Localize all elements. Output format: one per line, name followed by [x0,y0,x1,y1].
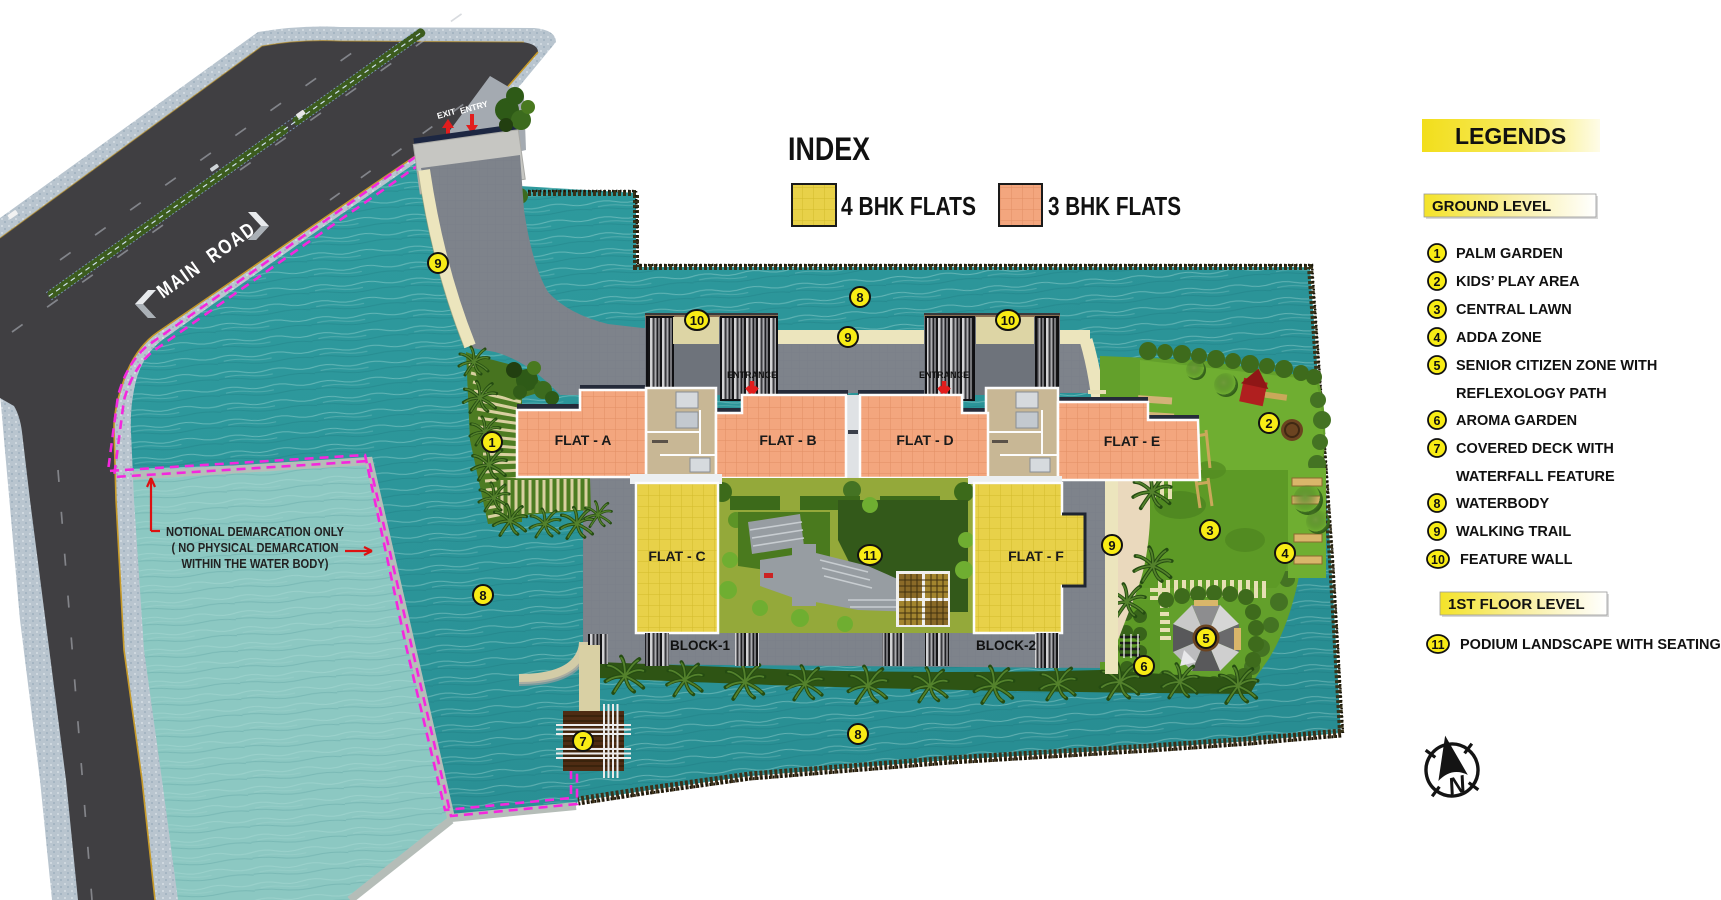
svg-text:REFLEXOLOGY PATH: REFLEXOLOGY PATH [1456,386,1607,402]
svg-text:10: 10 [1431,553,1445,567]
svg-text:8: 8 [856,290,863,305]
svg-text:11: 11 [863,548,877,563]
svg-text:BLOCK-2: BLOCK-2 [976,638,1036,653]
svg-text:FLAT - F: FLAT - F [1008,548,1064,564]
svg-text:GROUND LEVEL: GROUND LEVEL [1432,198,1551,215]
svg-text:9: 9 [1108,538,1115,553]
svg-text:NOTIONAL DEMARCATION ONLY: NOTIONAL DEMARCATION ONLY [166,524,344,539]
svg-text:COVERED DECK WITH: COVERED DECK WITH [1456,441,1614,457]
svg-text:3: 3 [1434,303,1441,317]
svg-text:4: 4 [1434,331,1441,345]
svg-text:FLAT - B: FLAT - B [759,432,816,448]
svg-text:ENTRANCE: ENTRANCE [919,370,969,380]
svg-text:9: 9 [1434,525,1441,539]
svg-text:5: 5 [1434,359,1441,373]
svg-text:WITHIN THE WATER BODY): WITHIN THE WATER BODY) [182,556,329,571]
svg-text:8: 8 [1434,497,1441,511]
svg-text:4: 4 [1281,546,1289,561]
svg-text:FEATURE WALL: FEATURE WALL [1460,552,1573,568]
svg-text:WATERFALL FEATURE: WATERFALL FEATURE [1456,469,1615,485]
svg-text:FLAT - E: FLAT - E [1104,433,1161,449]
svg-text:SENIOR CITIZEN ZONE WITH: SENIOR CITIZEN ZONE WITH [1456,358,1657,374]
svg-text:INDEX: INDEX [788,131,871,167]
svg-text:WALKING TRAIL: WALKING TRAIL [1456,524,1571,540]
svg-text:WATERBODY: WATERBODY [1456,496,1550,512]
svg-text:5: 5 [1202,631,1209,646]
svg-text:6: 6 [1434,414,1441,428]
svg-text:ADDA ZONE: ADDA ZONE [1456,330,1542,346]
svg-text:ENTRANCE: ENTRANCE [727,370,777,380]
svg-text:PODIUM LANDSCAPE WITH SEATING: PODIUM LANDSCAPE WITH SEATING [1460,637,1721,653]
svg-text:( NO PHYSICAL DEMARCATION: ( NO PHYSICAL DEMARCATION [172,540,339,555]
svg-text:10: 10 [1001,313,1015,328]
svg-text:BLOCK-1: BLOCK-1 [670,638,730,653]
svg-text:10: 10 [690,313,704,328]
svg-text:FLAT - C: FLAT - C [648,548,705,564]
svg-text:CENTRAL LAWN: CENTRAL LAWN [1456,302,1572,318]
svg-text:7: 7 [1434,442,1441,456]
svg-text:1: 1 [1434,247,1441,261]
svg-text:FLAT - D: FLAT - D [896,432,953,448]
svg-text:1: 1 [488,435,495,450]
svg-text:9: 9 [844,330,851,345]
svg-text:PALM GARDEN: PALM GARDEN [1456,246,1563,262]
svg-text:6: 6 [1140,659,1147,674]
svg-text:4 BHK FLATS: 4 BHK FLATS [841,191,976,221]
svg-text:8: 8 [479,588,486,603]
svg-text:KIDS’ PLAY AREA: KIDS’ PLAY AREA [1456,274,1580,290]
svg-text:8: 8 [854,727,861,742]
svg-text:FLAT - A: FLAT - A [555,432,612,448]
svg-text:11: 11 [1431,638,1444,652]
svg-text:3 BHK FLATS: 3 BHK FLATS [1048,191,1181,221]
svg-text:AROMA GARDEN: AROMA GARDEN [1456,413,1577,429]
svg-text:1ST FLOOR LEVEL: 1ST FLOOR LEVEL [1448,596,1585,613]
svg-text:LEGENDS: LEGENDS [1455,123,1566,149]
svg-text:3: 3 [1206,523,1213,538]
svg-text:2: 2 [1434,275,1441,289]
svg-text:9: 9 [434,256,441,271]
svg-text:7: 7 [579,734,586,749]
svg-text:2: 2 [1265,416,1272,431]
